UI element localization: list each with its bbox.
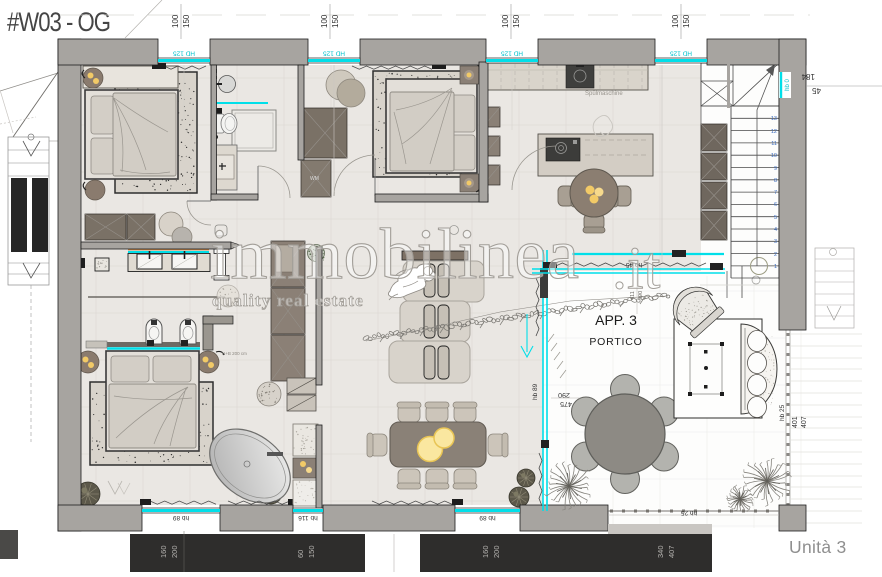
svg-text:1: 1 xyxy=(774,264,777,270)
svg-text:APP. 3: APP. 3 xyxy=(595,312,637,328)
svg-text:13: 13 xyxy=(771,116,777,122)
svg-text:150: 150 xyxy=(512,14,521,28)
svg-text:475: 475 xyxy=(560,400,572,407)
svg-text:160: 160 xyxy=(481,545,490,558)
svg-text:45: 45 xyxy=(812,86,821,95)
svg-text:3: 3 xyxy=(774,239,777,245)
svg-text:WM: WM xyxy=(310,176,319,182)
svg-text:7: 7 xyxy=(774,190,777,196)
svg-text:HD 125: HD 125 xyxy=(501,50,523,57)
svg-text:hb 89: hb 89 xyxy=(532,383,539,400)
svg-text:H+B 200 cm: H+B 200 cm xyxy=(222,351,247,356)
svg-text:150: 150 xyxy=(182,14,191,28)
svg-text:hb 89: hb 89 xyxy=(479,514,496,521)
svg-text:100: 100 xyxy=(171,14,180,28)
svg-text:150: 150 xyxy=(682,14,691,28)
svg-text:407: 407 xyxy=(667,545,676,558)
svg-text:HD 125: HD 125 xyxy=(323,50,345,57)
svg-text:6: 6 xyxy=(774,202,777,208)
svg-text:290: 290 xyxy=(558,391,570,398)
svg-text:HD 125: HD 125 xyxy=(670,50,692,57)
svg-text:Spülmaschine: Spülmaschine xyxy=(585,91,623,97)
svg-text:401: 401 xyxy=(792,416,799,428)
svg-text:8: 8 xyxy=(774,178,777,184)
svg-text:quality real estate: quality real estate xyxy=(212,291,364,310)
svg-text:Unità 3: Unità 3 xyxy=(789,537,847,557)
svg-text:11: 11 xyxy=(771,141,777,147)
svg-text:200: 200 xyxy=(170,545,179,558)
svg-text:10: 10 xyxy=(771,153,777,159)
svg-text:4: 4 xyxy=(774,227,777,233)
svg-text:hb 89: hb 89 xyxy=(172,514,189,521)
svg-text:100: 100 xyxy=(320,14,329,28)
svg-text:hb 116: hb 116 xyxy=(298,514,318,521)
svg-text:60: 60 xyxy=(296,550,305,558)
svg-text:150: 150 xyxy=(307,545,316,558)
svg-text:#W03 - OG: #W03 - OG xyxy=(7,8,110,38)
svg-text:5: 5 xyxy=(774,215,777,221)
svg-text:hb 25: hb 25 xyxy=(680,509,697,516)
svg-text:100: 100 xyxy=(501,14,510,28)
svg-text:HD 125: HD 125 xyxy=(173,50,195,57)
svg-text:12: 12 xyxy=(771,129,777,135)
svg-text:immobilinea: immobilinea xyxy=(210,214,579,294)
svg-text:9: 9 xyxy=(774,166,777,172)
svg-text:150: 150 xyxy=(331,14,340,28)
svg-text:.it: .it xyxy=(612,235,661,301)
svg-text:2: 2 xyxy=(774,252,777,258)
svg-text:184: 184 xyxy=(801,72,815,81)
svg-text:hb 25: hb 25 xyxy=(779,404,786,421)
svg-text:160: 160 xyxy=(159,545,168,558)
svg-text:407: 407 xyxy=(801,416,808,428)
svg-text:PORTICO: PORTICO xyxy=(589,336,642,348)
svg-text:200: 200 xyxy=(492,545,501,558)
svg-text:340: 340 xyxy=(656,545,665,558)
svg-text:100: 100 xyxy=(671,14,680,28)
svg-text:hb 0: hb 0 xyxy=(785,79,791,91)
